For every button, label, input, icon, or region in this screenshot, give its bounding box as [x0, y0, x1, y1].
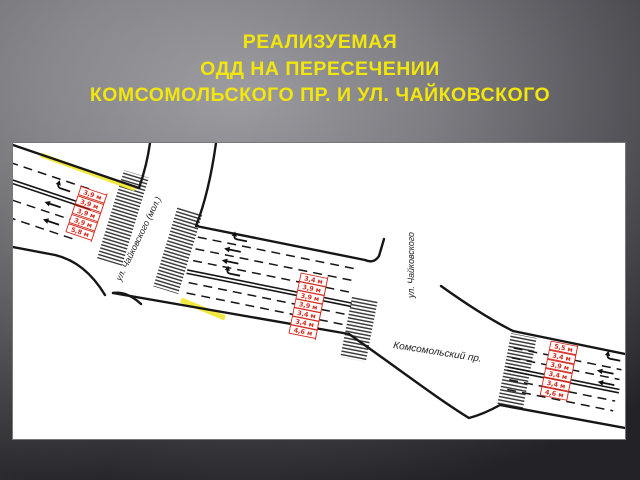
slide-title-line-3: КОМСОМОЛЬСКОГО ПР. И УЛ. ЧАЙКОВСКОГО — [0, 82, 640, 109]
lane-divider-dashed — [13, 162, 95, 191]
road-edge — [13, 247, 105, 295]
lane-arrow-icon — [55, 179, 73, 191]
lane-arrow-icon — [221, 258, 239, 267]
road-edge — [349, 334, 625, 428]
road-scheme-svg: 3,9 м3,9 м3,9 м3,9 м5,8 м 3,4 м3,9 м3,9 … — [13, 143, 625, 439]
slide-title-line-1: РЕАЛИЗУЕМАЯ — [0, 29, 640, 56]
lane-arrow-icon — [42, 217, 60, 228]
lane-arrow-icon — [44, 199, 62, 210]
road-edge — [196, 226, 365, 260]
lane-arrow-icon — [596, 368, 614, 377]
diagram-panel: 3,9 м3,9 м3,9 м3,9 м5,8 м 3,4 м3,9 м3,9 … — [12, 142, 626, 440]
center-double-line — [187, 270, 352, 303]
slide-title-line-2: ОДД НА ПЕРЕСЕЧЕНИИ — [0, 56, 640, 83]
street-label-chaykovskogo: ул. Чайковского — [406, 232, 416, 299]
slide-background: РЕАЛИЗУЕМАЯ ОДД НА ПЕРЕСЕЧЕНИИ КОМСОМОЛЬ… — [0, 0, 640, 480]
road-edge — [365, 239, 384, 261]
street-label-komsomolsky: Комсомольский пр. — [392, 340, 482, 365]
slide-title: РЕАЛИЗУЕМАЯ ОДД НА ПЕРЕСЕЧЕНИИ КОМСОМОЛЬ… — [0, 29, 640, 109]
lane-arrow-icon — [224, 246, 242, 255]
dimension-stack-west: 3,9 м3,9 м3,9 м3,9 м5,8 м — [65, 185, 107, 242]
road-edge — [13, 145, 139, 188]
pedestrian-crossing-west-2 — [153, 206, 202, 294]
